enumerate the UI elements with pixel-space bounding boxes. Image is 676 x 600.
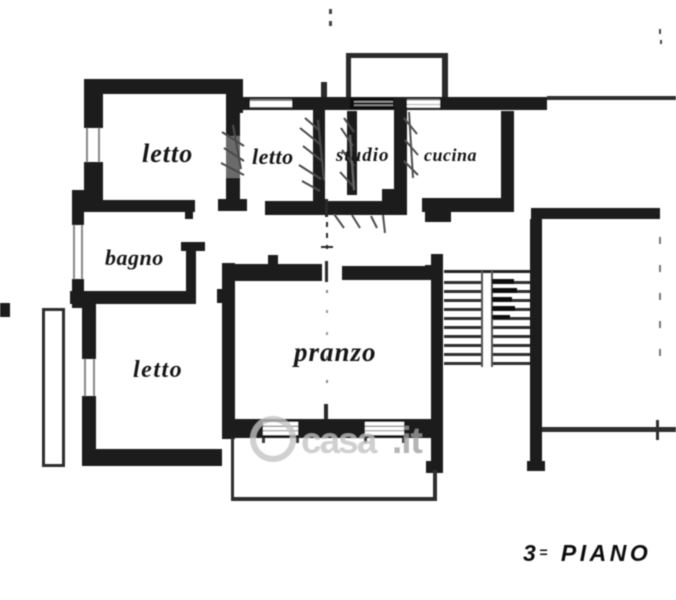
svg-text:letto: letto — [142, 139, 193, 168]
svg-text:letto: letto — [252, 144, 294, 169]
svg-text:cucina: cucina — [424, 145, 477, 165]
svg-text:.it: .it — [392, 420, 423, 461]
svg-text:casa: casa — [301, 420, 378, 461]
svg-text:letto: letto — [133, 357, 183, 383]
svg-text:pranzo: pranzo — [292, 337, 377, 367]
svg-text:studio: studio — [335, 145, 390, 166]
svg-text:bagno: bagno — [105, 245, 164, 270]
